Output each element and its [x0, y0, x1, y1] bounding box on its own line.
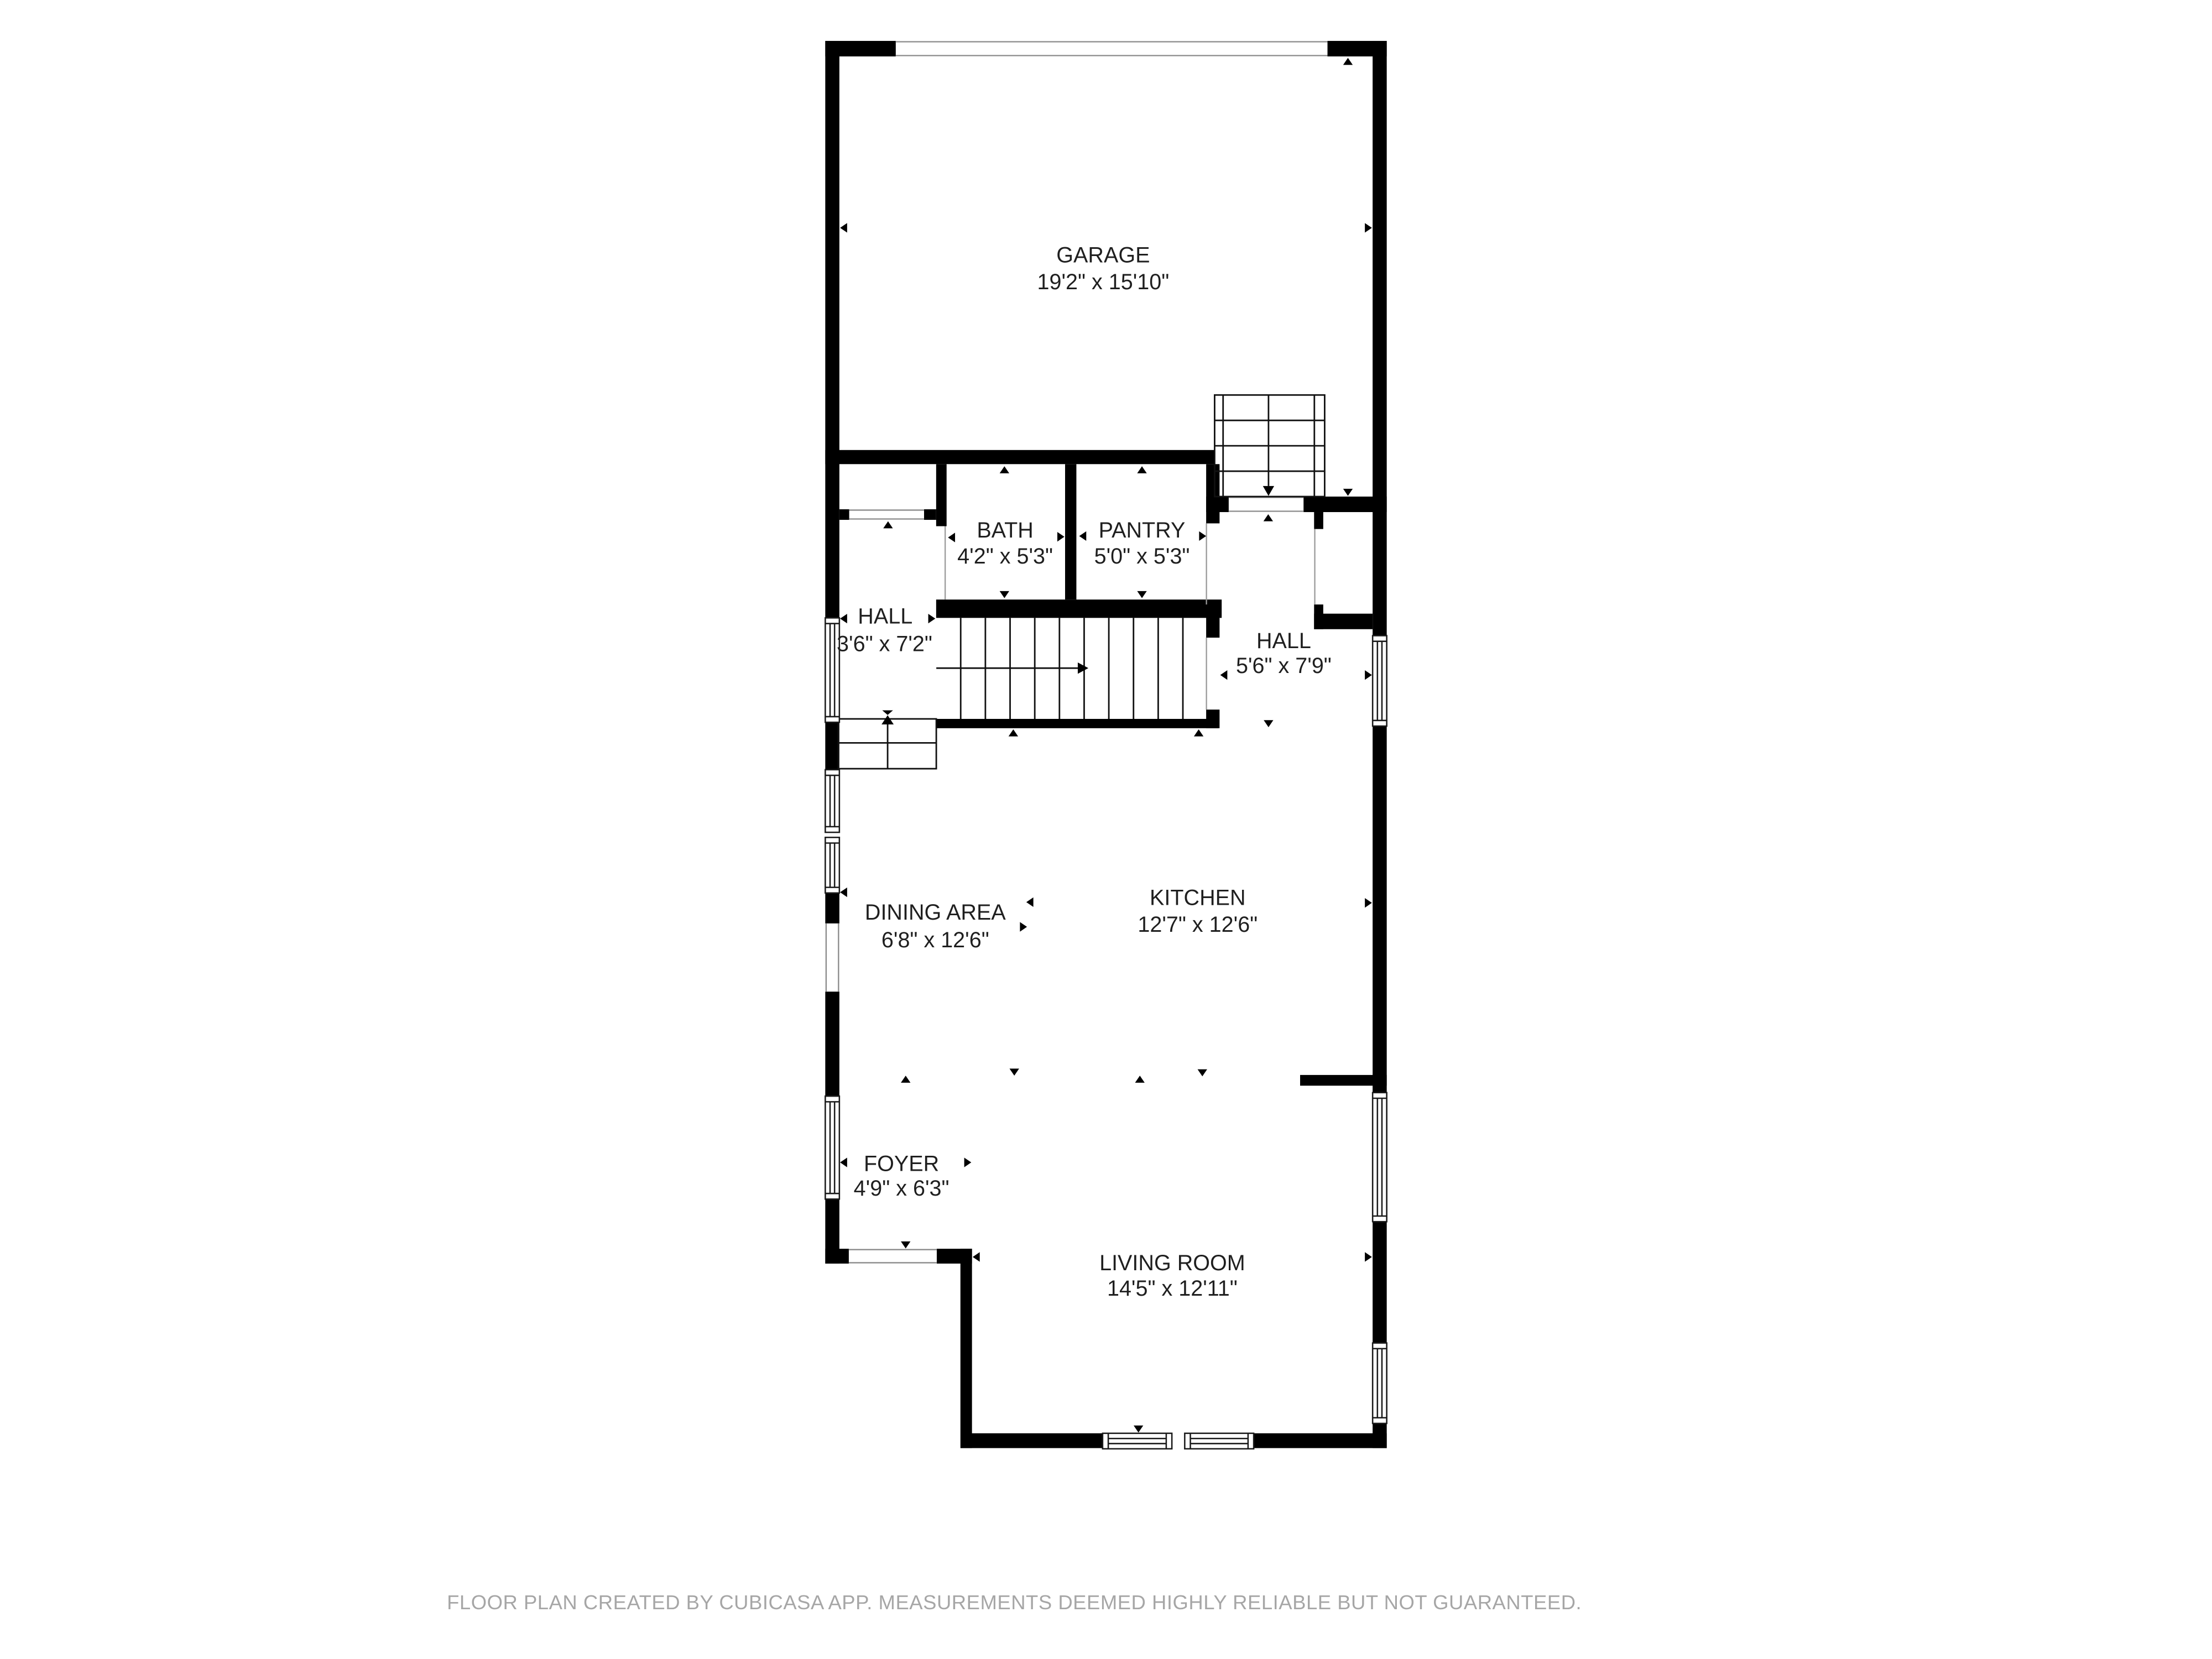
room-dims-hall-left: 3'6" x 7'2": [837, 632, 932, 656]
dimension-arrow-icon: [1199, 531, 1206, 541]
room-label-kitchen: KITCHEN: [1150, 885, 1246, 910]
stair-direction-arrow-icon: [881, 715, 894, 724]
wall: [825, 722, 839, 770]
living-window-icon: [1185, 1433, 1254, 1449]
living-window-icon: [1373, 1093, 1387, 1222]
wall: [839, 509, 849, 520]
garage-door: [896, 41, 1328, 56]
staircase-upper-flight: [1214, 395, 1324, 497]
dimension-arrow-icon: [840, 888, 847, 897]
wall: [1373, 41, 1387, 636]
footer-disclaimer: FLOOR PLAN CREATED BY CUBICASA APP. MEAS…: [447, 1591, 1582, 1614]
foyer-window-icon: [825, 1096, 839, 1199]
stair-direction-arrow-icon: [1263, 486, 1274, 496]
dimension-arrow-icon: [1343, 58, 1353, 65]
dimension-arrow-icon: [1000, 466, 1009, 473]
wall: [936, 719, 1218, 728]
wall: [825, 1249, 849, 1264]
dimension-arrow-icon: [1137, 591, 1146, 598]
room-label-garage: GARAGE: [1056, 243, 1150, 267]
dimension-arrow-icon: [840, 223, 847, 232]
room-label-dining: DINING AREA: [865, 900, 1006, 925]
dining-window-icon: [825, 770, 839, 832]
wall: [1065, 464, 1076, 599]
room-dims-hall-right: 5'6" x 7'9": [1236, 654, 1332, 678]
room-dims-kitchen: 12'7" x 12'6": [1138, 912, 1258, 937]
room-label-hall-left: HALL: [858, 604, 912, 629]
dimension-arrow-icon: [1079, 531, 1087, 541]
dimension-arrow-icon: [901, 1076, 910, 1083]
dimension-arrow-icon: [1365, 898, 1372, 907]
room-label-hall-right: HALL: [1256, 629, 1311, 653]
wall: [936, 599, 1222, 618]
wall: [825, 450, 1214, 465]
dimension-arrow-icon: [1057, 532, 1065, 541]
wall: [1314, 512, 1323, 529]
dimension-arrow-icon: [1020, 922, 1027, 931]
wall: [924, 509, 936, 520]
dining-window-icon: [825, 837, 839, 893]
room-label-living: LIVING ROOM: [1099, 1251, 1245, 1275]
wall: [825, 41, 839, 618]
room-dims-foyer: 4'9" x 6'3": [854, 1176, 950, 1201]
dimension-arrow-icon: [840, 614, 847, 623]
dimension-arrow-icon: [1198, 1070, 1207, 1077]
dimension-arrow-icon: [1009, 729, 1018, 737]
room-label-bath: BATH: [977, 518, 1034, 542]
stair-direction-arrow-icon: [1078, 662, 1088, 674]
side-opening: [825, 924, 839, 992]
wall: [1254, 1433, 1387, 1448]
dimension-arrow-icon: [1134, 1426, 1143, 1433]
hall-window-icon: [1373, 635, 1387, 726]
room-dims-bath: 4'2" x 5'3": [957, 544, 1053, 568]
wall: [1303, 497, 1387, 512]
wall: [825, 893, 839, 924]
staircase-lower-flight: [936, 618, 1183, 719]
dimension-arrow-icon: [1365, 1252, 1372, 1261]
dimension-arrow-icon: [840, 1157, 847, 1167]
dimension-arrow-icon: [1137, 466, 1146, 473]
room-label-foyer: FOYER: [864, 1151, 939, 1176]
dimension-arrow-icon: [1343, 489, 1353, 496]
front-door-opening: [849, 1249, 937, 1264]
wall: [1373, 1222, 1387, 1343]
dimension-arrow-icon: [1000, 591, 1009, 598]
dimension-arrow-icon: [1264, 514, 1273, 521]
wall: [937, 1249, 972, 1264]
room-labels: GARAGE 19'2" x 15'10" BATH 4'2" x 5'3" P…: [837, 243, 1332, 1301]
dimension-arrow-icon: [1194, 729, 1203, 737]
dimension-arrow-icon: [928, 614, 936, 623]
wall: [1300, 1075, 1387, 1086]
dimension-arrow-icon: [973, 1252, 980, 1261]
floor-plan: GARAGE 19'2" x 15'10" BATH 4'2" x 5'3" P…: [0, 0, 2212, 1659]
wall: [1206, 604, 1219, 638]
room-dims-dining: 6'8" x 12'6": [881, 928, 989, 952]
dimension-arrow-icon: [1135, 1076, 1145, 1083]
stair-direction-arrow-icon: [882, 710, 893, 714]
living-window-icon: [1103, 1433, 1172, 1449]
stair-passage-opening: [1229, 497, 1303, 512]
room-dims-garage: 19'2" x 15'10": [1037, 270, 1169, 294]
room-dims-pantry: 5'0" x 5'3": [1094, 544, 1190, 568]
wall: [825, 992, 839, 1096]
staircase-bottom-landing: [838, 710, 936, 769]
dimension-arrow-icon: [964, 1157, 972, 1167]
dimension-arrow-icon: [901, 1241, 910, 1249]
wall: [936, 464, 947, 526]
dimension-arrow-icon: [1010, 1068, 1019, 1076]
wall: [1206, 464, 1219, 523]
room-dims-living: 14'5" x 12'11": [1107, 1276, 1238, 1301]
wall: [1314, 614, 1373, 629]
closet-door-opening: [849, 509, 924, 520]
wall: [961, 1433, 1103, 1448]
dimension-arrow-icon: [1026, 898, 1034, 907]
dimension-arrow-icon: [883, 521, 893, 529]
dimension-arrow-icon: [1264, 720, 1273, 727]
dimension-arrow-icon: [948, 533, 955, 542]
wall: [1206, 497, 1229, 512]
dimension-arrow-icon: [1365, 223, 1372, 232]
dimension-arrow-icon: [1365, 670, 1372, 680]
wall: [961, 1249, 972, 1448]
living-window-icon: [1373, 1343, 1387, 1423]
wall: [1373, 726, 1387, 1093]
dimension-arrow-icon: [1220, 670, 1228, 680]
room-label-pantry: PANTRY: [1099, 518, 1186, 542]
